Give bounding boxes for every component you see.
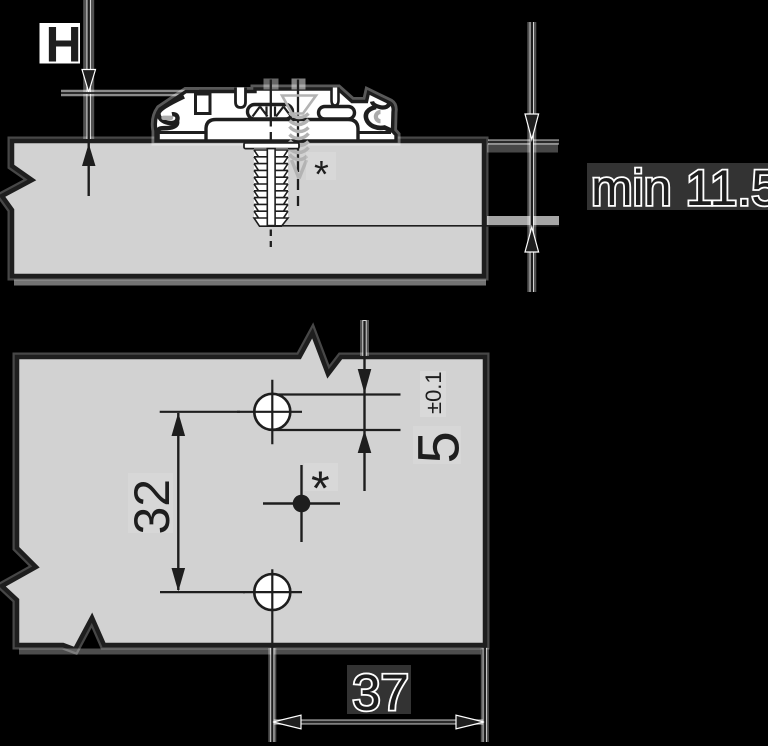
svg-text:*: * [314, 154, 329, 196]
svg-text:32: 32 [124, 479, 180, 535]
svg-text:±0.1: ±0.1 [421, 371, 446, 414]
svg-text:H: H [45, 17, 81, 73]
svg-text:*: * [311, 463, 330, 516]
svg-text:min 11.5: min 11.5 [591, 160, 768, 216]
svg-text:37: 37 [352, 664, 409, 721]
svg-text:5: 5 [407, 431, 472, 463]
